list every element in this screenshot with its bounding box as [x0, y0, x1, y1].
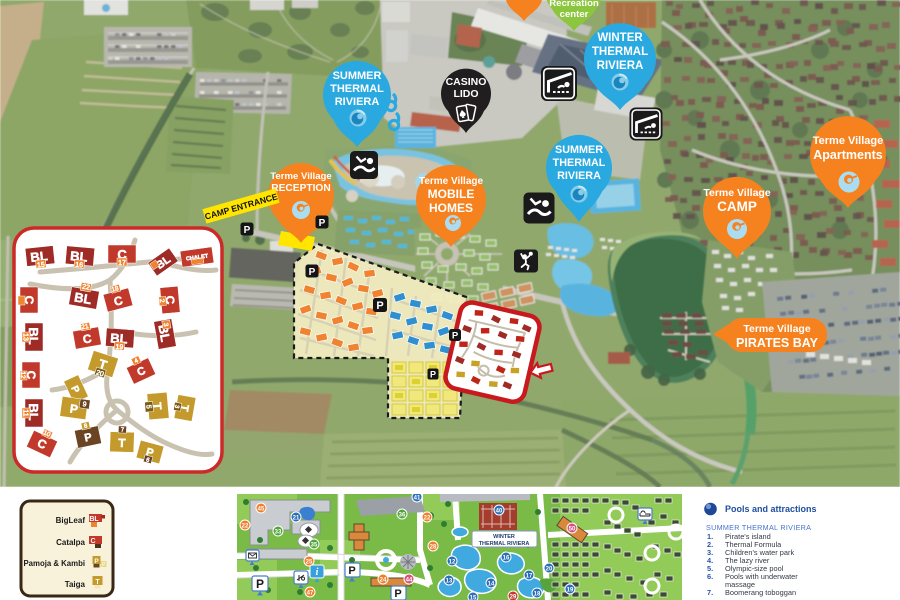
svg-text:P: P: [348, 565, 355, 577]
svg-text:14: 14: [488, 582, 495, 588]
svg-text:PIRATES BAY: PIRATES BAY: [736, 336, 819, 350]
svg-text:22: 22: [424, 516, 431, 522]
svg-text:MOBILE: MOBILE: [428, 187, 475, 201]
svg-text:i: i: [316, 567, 319, 578]
svg-text:HOMES: HOMES: [429, 201, 473, 215]
svg-text:P: P: [94, 558, 99, 565]
svg-text:P: P: [452, 331, 459, 342]
svg-text:22: 22: [81, 284, 90, 292]
svg-text:P: P: [394, 588, 401, 600]
svg-text:17: 17: [526, 574, 533, 580]
svg-text:41: 41: [414, 496, 421, 502]
svg-text:Terme Village: Terme Village: [419, 176, 484, 187]
svg-text:13: 13: [22, 333, 29, 341]
svg-text:Pools and attractions: Pools and attractions: [725, 504, 817, 514]
svg-text:CAMP: CAMP: [717, 199, 757, 214]
svg-text:15: 15: [470, 596, 477, 600]
svg-text:Terme Village: Terme Village: [813, 135, 884, 147]
svg-text:33: 33: [275, 530, 282, 536]
svg-text:20: 20: [546, 567, 553, 573]
svg-text:WINTER: WINTER: [493, 534, 515, 540]
svg-text:24: 24: [380, 578, 387, 584]
svg-text:WINTER: WINTER: [597, 32, 643, 44]
svg-text:RIVIERA: RIVIERA: [557, 170, 601, 182]
svg-text:18: 18: [534, 592, 541, 598]
svg-text:THERMAL RIVIERA: THERMAL RIVIERA: [479, 541, 530, 547]
svg-text:Boomerang toboggan: Boomerang toboggan: [725, 588, 796, 597]
svg-text:RIVIERA: RIVIERA: [597, 60, 644, 72]
svg-text:45: 45: [258, 507, 265, 513]
svg-text:11: 11: [22, 409, 29, 416]
svg-text:35: 35: [311, 543, 318, 549]
svg-text:21: 21: [293, 516, 300, 522]
svg-text:36: 36: [399, 513, 406, 519]
svg-text:12: 12: [449, 560, 456, 566]
svg-text:Apartments: Apartments: [813, 148, 883, 162]
svg-text:RIVIERA: RIVIERA: [335, 96, 380, 108]
svg-text:CASINO: CASINO: [446, 76, 487, 88]
svg-text:28: 28: [430, 545, 437, 551]
svg-text:17: 17: [118, 260, 126, 267]
svg-text:6.: 6.: [707, 572, 713, 581]
svg-text:P: P: [244, 225, 251, 236]
svg-text:5: 5: [144, 405, 151, 410]
svg-text:13: 13: [446, 579, 453, 585]
svg-text:22: 22: [242, 524, 249, 530]
svg-text:T: T: [118, 436, 126, 450]
svg-text:SUMMER: SUMMER: [333, 70, 382, 82]
svg-text:THERMAL: THERMAL: [553, 157, 606, 169]
svg-text:T: T: [95, 579, 100, 586]
svg-text:SUMMER: SUMMER: [555, 144, 603, 156]
svg-text:40: 40: [496, 509, 503, 515]
svg-text:Terme Village: Terme Village: [743, 323, 810, 335]
svg-text:29: 29: [510, 595, 517, 600]
svg-text:P: P: [319, 218, 326, 229]
svg-text:44: 44: [406, 578, 413, 584]
svg-text:15: 15: [37, 262, 46, 270]
svg-text:THERMAL: THERMAL: [592, 46, 648, 58]
svg-text:16: 16: [75, 262, 83, 270]
svg-text:Terme Village: Terme Village: [703, 187, 770, 199]
svg-text:Taiga: Taiga: [65, 580, 86, 589]
svg-text:LIDO: LIDO: [453, 88, 478, 100]
svg-text:P: P: [376, 300, 383, 312]
svg-text:19: 19: [115, 344, 123, 352]
svg-text:P: P: [256, 577, 264, 591]
svg-text:16: 16: [503, 556, 510, 562]
svg-text:BL: BL: [89, 516, 99, 523]
svg-text:RECEPTION: RECEPTION: [271, 183, 330, 194]
svg-text:47: 47: [307, 591, 314, 597]
svg-text:SUMMER THERMAL RIVIERA: SUMMER THERMAL RIVIERA: [706, 523, 811, 532]
svg-text:P: P: [430, 370, 436, 380]
svg-text:C: C: [90, 538, 95, 545]
svg-text:THERMAL: THERMAL: [330, 83, 384, 95]
svg-text:12: 12: [19, 371, 26, 379]
svg-text:7.: 7.: [707, 588, 713, 597]
svg-text:Terme Village: Terme Village: [270, 171, 332, 182]
svg-text:center: center: [560, 9, 589, 20]
svg-text:Recreation: Recreation: [549, 0, 599, 9]
svg-text:Pamoja & Kambi: Pamoja & Kambi: [23, 559, 85, 568]
svg-text:P: P: [309, 267, 316, 278]
svg-text:19: 19: [567, 588, 574, 594]
svg-text:50: 50: [569, 527, 576, 533]
svg-text:Catalpa: Catalpa: [56, 538, 85, 547]
svg-text:BigLeaf: BigLeaf: [56, 516, 86, 525]
